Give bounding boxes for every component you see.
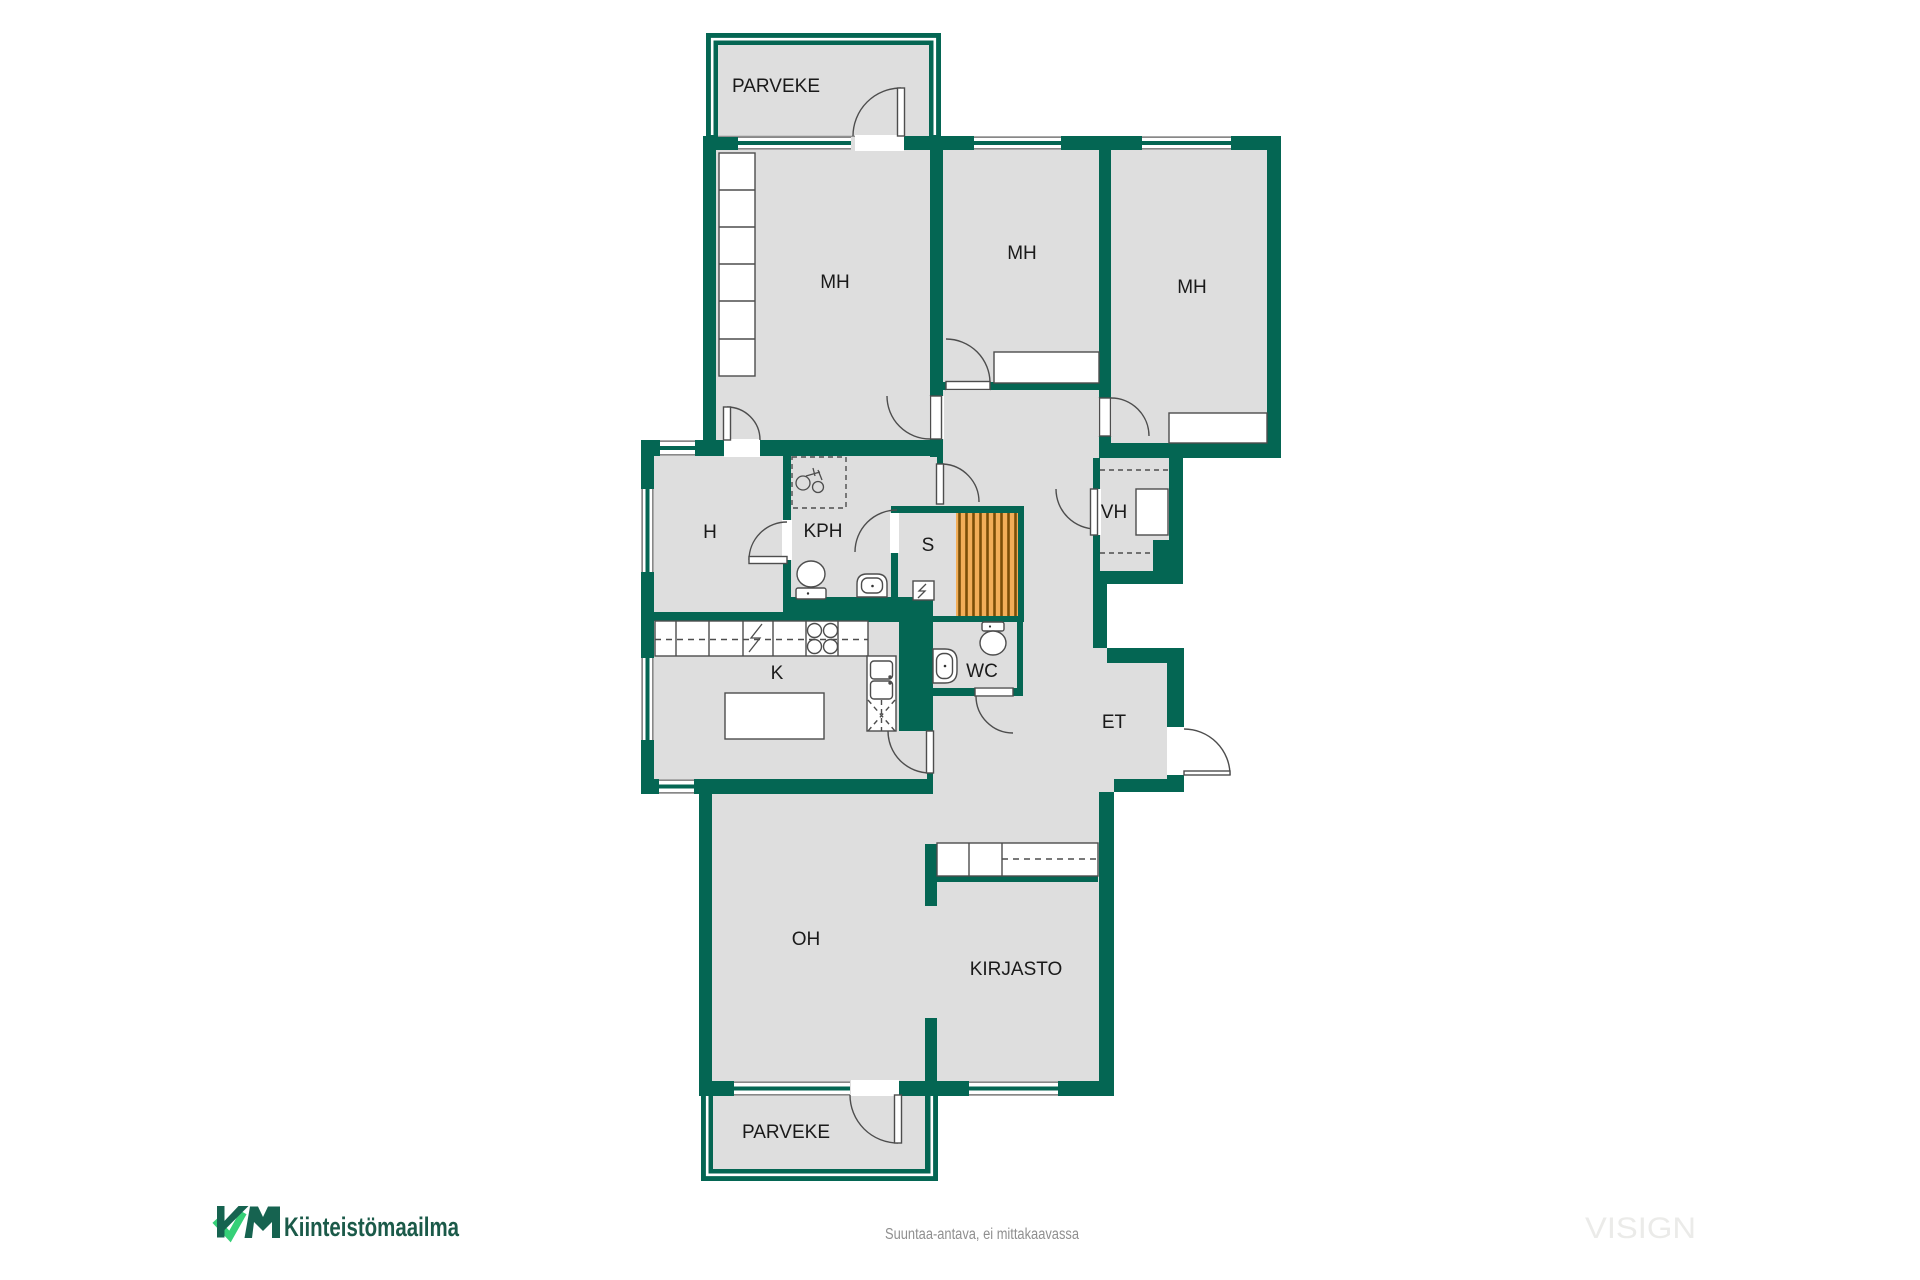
svg-text:Kiinteistömaailma: Kiinteistömaailma [284, 1212, 460, 1242]
svg-text:WC: WC [966, 661, 998, 682]
svg-text:VH: VH [1101, 502, 1127, 523]
svg-text:PARVEKE: PARVEKE [742, 1122, 830, 1143]
svg-text:MH: MH [820, 272, 850, 293]
svg-text:H: H [703, 522, 717, 543]
svg-text:MH: MH [1007, 243, 1037, 264]
svg-text:K: K [771, 663, 784, 684]
svg-text:OH: OH [792, 929, 821, 950]
svg-text:MH: MH [1177, 277, 1207, 298]
svg-text:KIRJASTO: KIRJASTO [970, 959, 1063, 980]
svg-text:KPH: KPH [803, 521, 842, 542]
svg-text:S: S [922, 535, 935, 556]
svg-text:PARVEKE: PARVEKE [732, 76, 820, 97]
svg-text:VISIGN: VISIGN [1585, 1212, 1696, 1245]
svg-text:Suuntaa-antava, ei mittakaavas: Suuntaa-antava, ei mittakaavassa [885, 1226, 1079, 1243]
svg-text:ET: ET [1102, 712, 1127, 733]
